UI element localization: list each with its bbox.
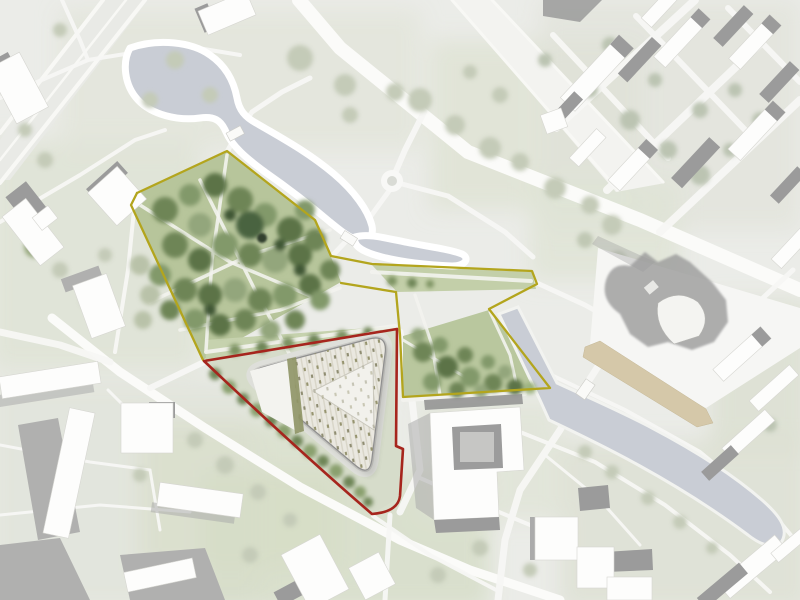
masterplan-svg — [0, 0, 800, 600]
site-plan-canvas — [0, 0, 800, 600]
roundabout — [381, 170, 403, 192]
park-pavilion — [257, 233, 267, 243]
